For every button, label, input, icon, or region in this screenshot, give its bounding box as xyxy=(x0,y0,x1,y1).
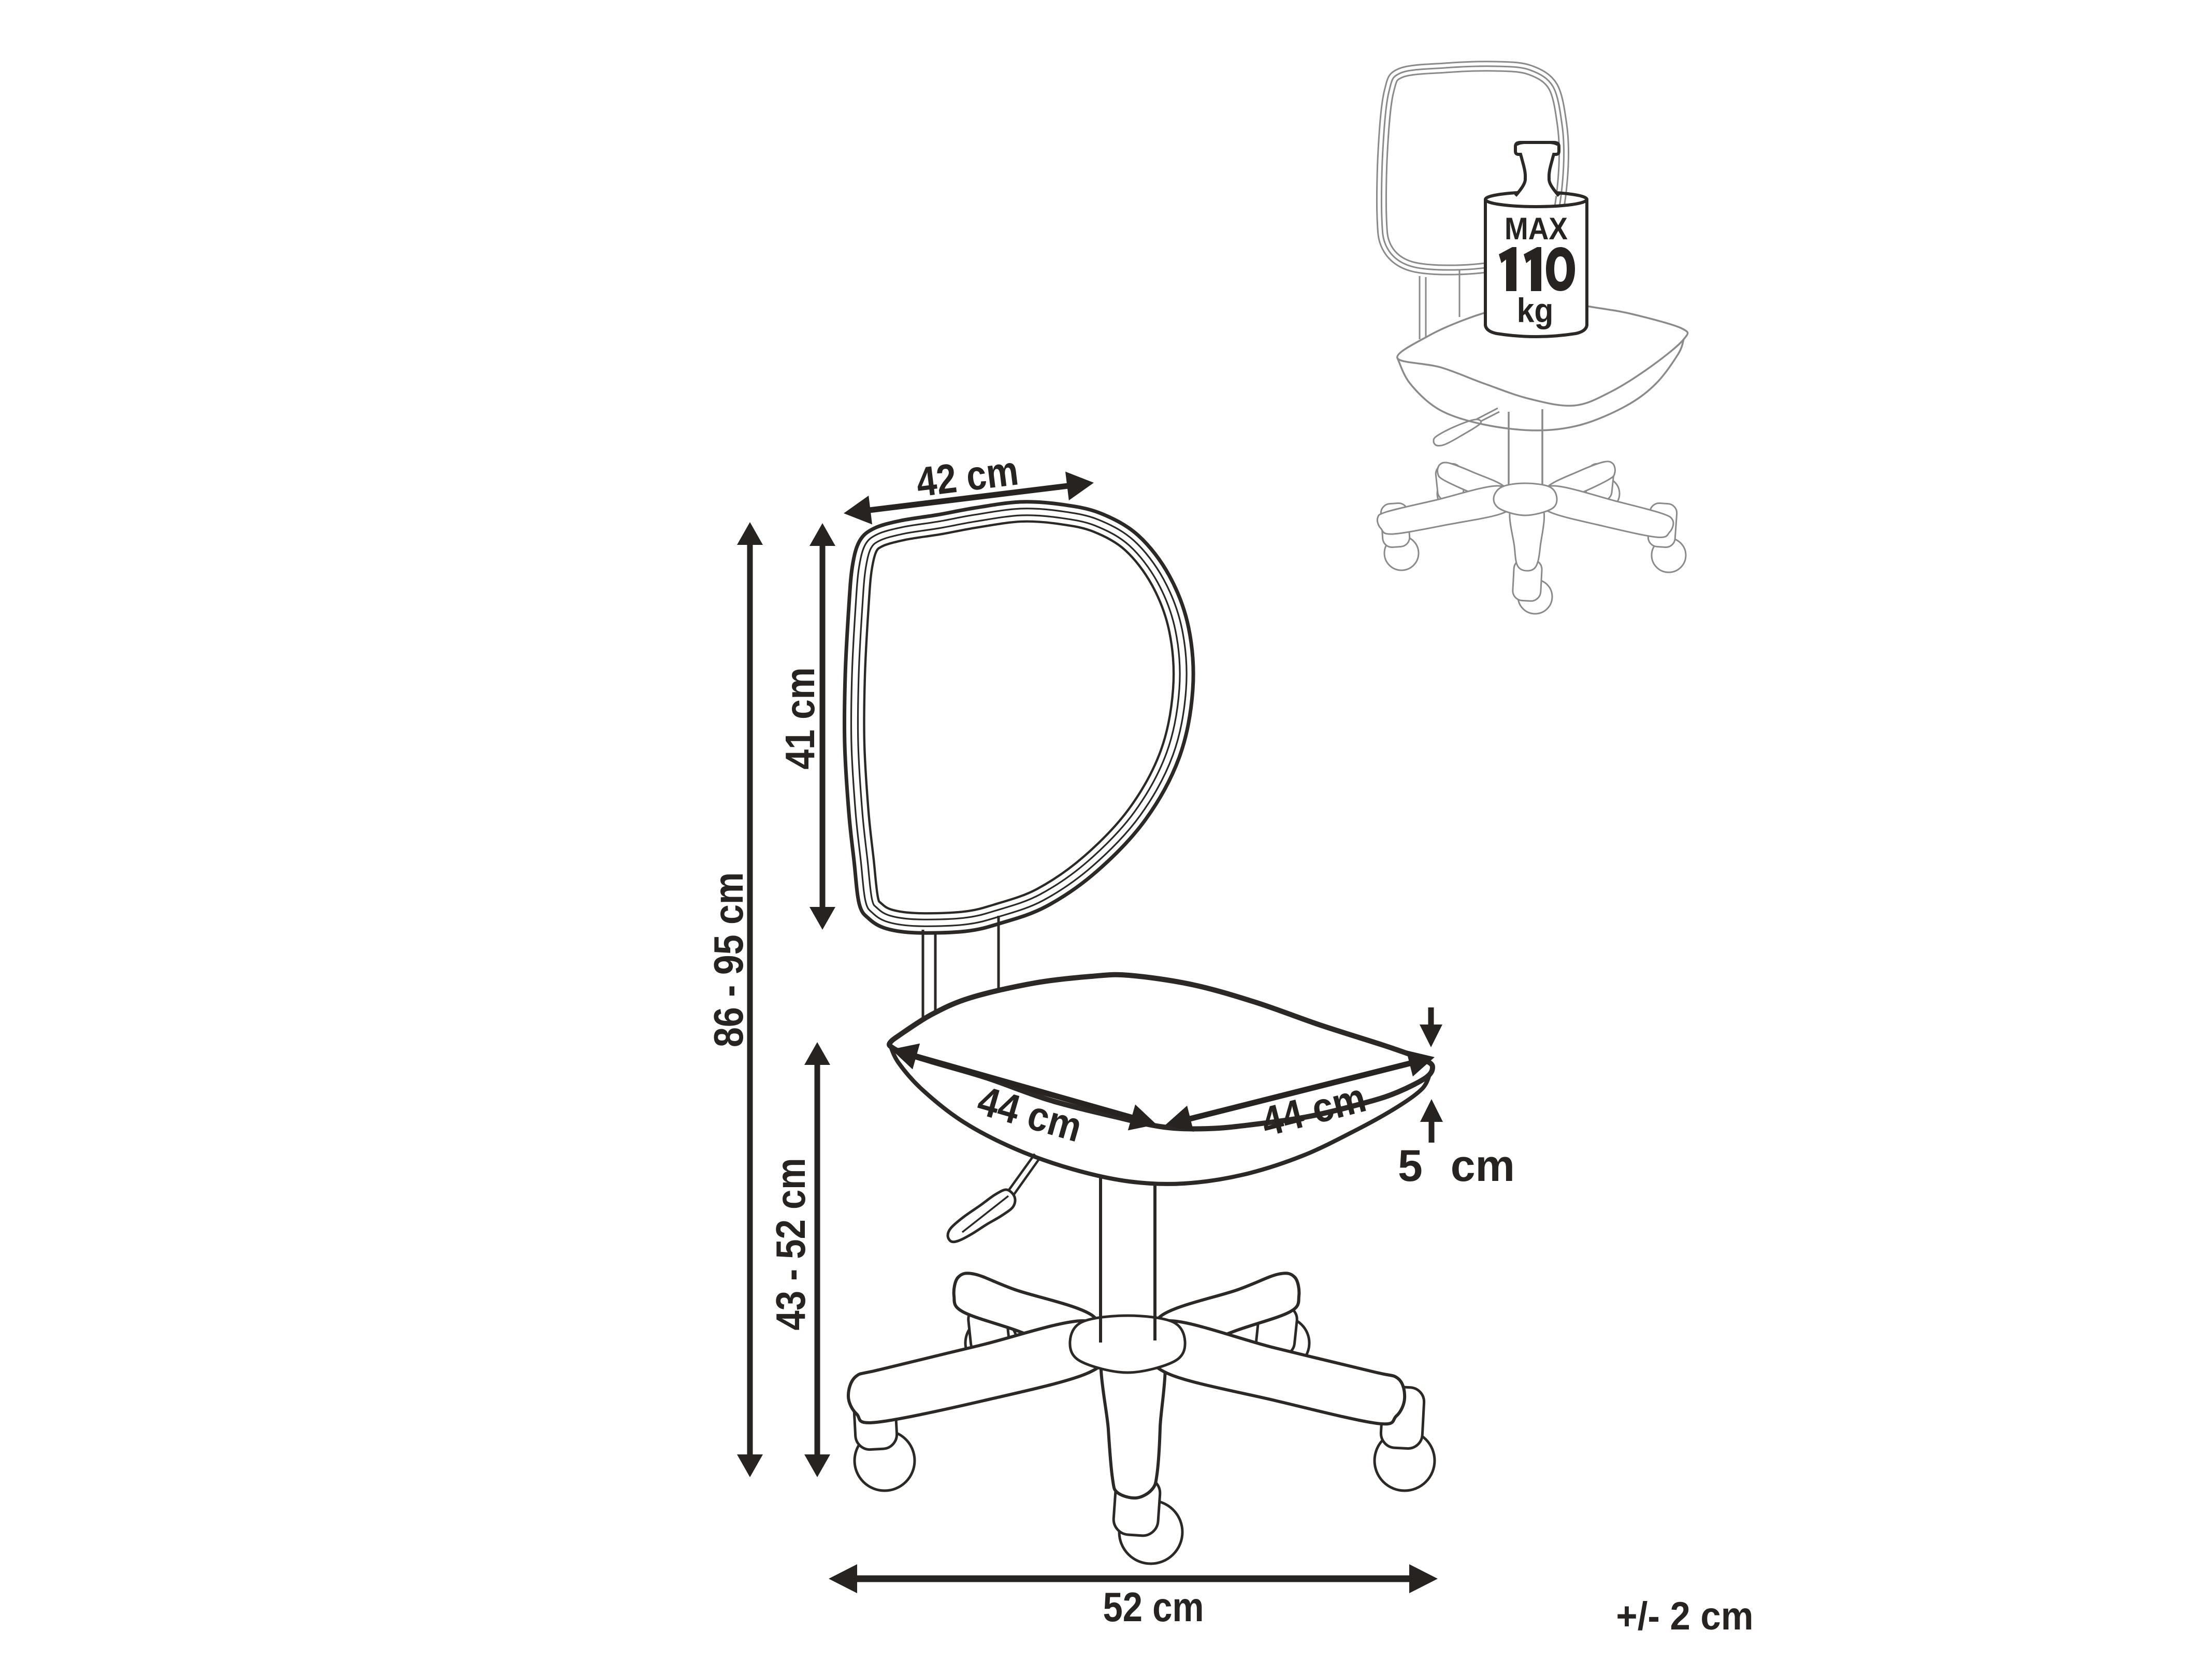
svg-text:43 - 52 cm: 43 - 52 cm xyxy=(767,1158,814,1330)
svg-text:5 cm: 5 cm xyxy=(1398,1141,1515,1191)
svg-text:41 cm: 41 cm xyxy=(776,667,823,769)
svg-text:+/- 2 cm: +/- 2 cm xyxy=(1616,1594,1753,1638)
svg-text:MAX: MAX xyxy=(1505,212,1568,247)
svg-text:52 cm: 52 cm xyxy=(1103,1583,1204,1630)
svg-text:86 - 95 cm: 86 - 95 cm xyxy=(705,872,751,1047)
svg-text:kg: kg xyxy=(1517,292,1554,330)
